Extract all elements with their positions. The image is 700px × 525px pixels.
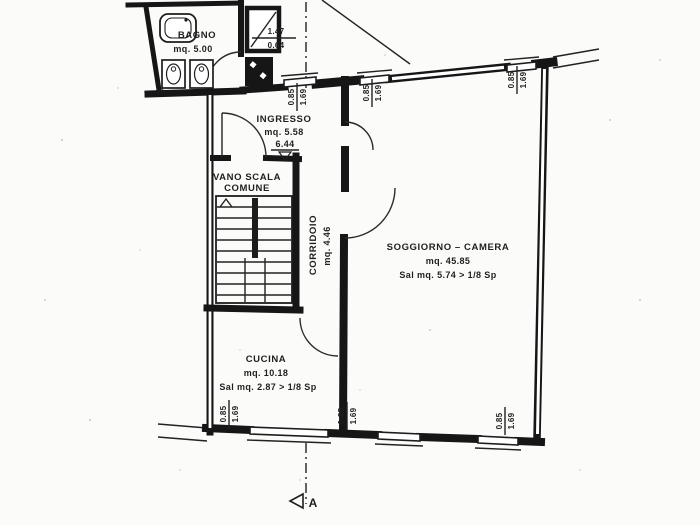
room-ingresso: INGRESSO mq. 5.58 6.44 <box>257 114 312 160</box>
bidet-icon <box>162 60 185 88</box>
room-label: BAGNO <box>178 30 216 41</box>
room-label-line1: VANO SCALA <box>213 172 281 183</box>
room-area: mq. 5.00 <box>173 44 212 54</box>
dim-numerator: 0.85 <box>362 84 371 101</box>
dim-numerator: 0.85 <box>287 88 296 105</box>
dim-window-6: 0.85 1.69 <box>495 407 516 435</box>
toilet-icon <box>190 60 213 88</box>
floor-plan-scan: BAGNO mq. 5.00 INGRESSO mq. 5.58 6.44 VA… <box>0 0 700 525</box>
dim-denominator: 0.64 <box>268 41 285 50</box>
dim-denominator: 1.69 <box>374 84 383 101</box>
door-soggiorno-1 <box>345 122 373 150</box>
door-soggiorno-2 <box>345 188 395 238</box>
room-area: mq. 10.18 <box>244 368 289 378</box>
flue-shaft <box>245 57 273 86</box>
room-area: mq. 4.46 <box>322 226 332 265</box>
window-top-left <box>360 75 389 85</box>
boundary-line <box>322 0 410 64</box>
room-note: Sal mq. 2.87 > 1/8 Sp <box>219 382 316 392</box>
window-ingresso <box>284 77 316 87</box>
dim-denominator: 1.69 <box>519 71 528 88</box>
room-area: mq. 5.58 <box>264 127 303 137</box>
room-area: mq. 45.85 <box>426 256 471 266</box>
floor-plan-canvas: BAGNO mq. 5.00 INGRESSO mq. 5.58 6.44 VA… <box>0 0 700 525</box>
dim-numerator: 0.85 <box>337 407 346 424</box>
room-label: CUCINA <box>246 354 287 365</box>
window-bottom-right <box>478 436 518 445</box>
window-top-right <box>507 62 536 72</box>
dim-window-4: 0.85 1.69 <box>219 400 240 428</box>
dim-denominator: 1.69 <box>299 88 308 105</box>
dim-denominator: 1.69 <box>231 405 240 422</box>
section-arrow-icon <box>290 494 303 508</box>
elevation-value: 6.44 <box>275 139 294 149</box>
room-soggiorno: SOGGIORNO – CAMERA mq. 45.85 Sal mq. 5.7… <box>387 242 510 280</box>
room-label: CORRIDOIO <box>308 215 319 275</box>
dim-numerator: 1.47 <box>268 27 285 36</box>
room-corridoio: CORRIDOIO mq. 4.46 <box>308 215 332 275</box>
room-vano-scala: VANO SCALA COMUNE <box>213 172 281 194</box>
dim-numerator: 0.85 <box>507 71 516 88</box>
dim-numerator: 0.85 <box>219 405 228 422</box>
dim-denominator: 1.69 <box>507 412 516 429</box>
room-label: SOGGIORNO – CAMERA <box>387 242 510 253</box>
dim-numerator: 0.85 <box>495 412 504 429</box>
room-label: INGRESSO <box>257 114 312 125</box>
door-cucina <box>300 318 338 356</box>
staircase <box>216 196 292 303</box>
room-label-line2: COMUNE <box>224 183 270 194</box>
window-cucina <box>250 427 328 437</box>
section-letter: A <box>309 496 318 510</box>
stair-rail <box>252 198 258 258</box>
room-cucina: CUCINA mq. 10.18 Sal mq. 2.87 > 1/8 Sp <box>219 354 316 392</box>
stair-direction-arrow-icon <box>220 199 232 207</box>
room-note: Sal mq. 5.74 > 1/8 Sp <box>399 270 496 280</box>
threshold-mark: 53 <box>156 88 164 95</box>
dim-denominator: 1.69 <box>349 407 358 424</box>
window-bottom-mid <box>378 432 420 441</box>
